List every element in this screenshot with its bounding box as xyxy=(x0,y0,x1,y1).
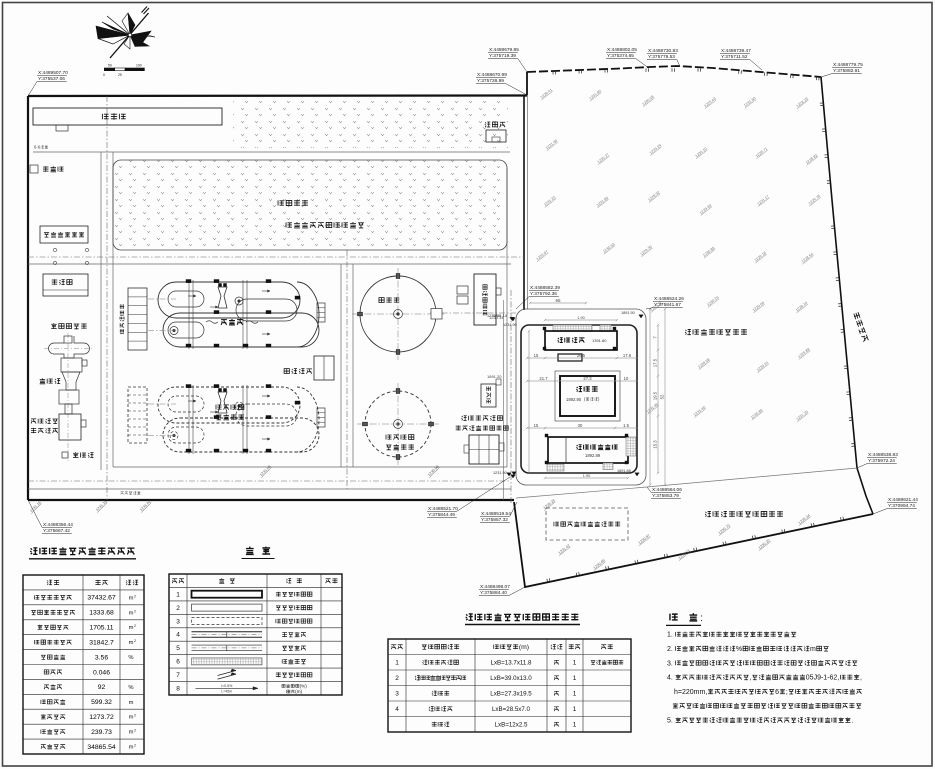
svg-text:10: 10 xyxy=(624,376,629,381)
svg-text:Y:375719.39: Y:375719.39 xyxy=(489,53,516,59)
svg-text:Y:375667.42: Y:375667.42 xyxy=(43,528,70,534)
svg-text:4: 4 xyxy=(176,632,180,639)
svg-text:1: 1 xyxy=(395,659,399,666)
svg-text:1891.90: 1891.90 xyxy=(621,311,635,315)
svg-text:21.7: 21.7 xyxy=(539,376,548,381)
svg-text:X:4489507.70: X:4489507.70 xyxy=(38,70,68,76)
svg-text:1: 1 xyxy=(573,690,577,697)
svg-text:15: 15 xyxy=(534,353,539,358)
svg-text:2: 2 xyxy=(134,714,136,718)
svg-text:1391.80: 1391.80 xyxy=(592,338,607,343)
svg-text:(m): (m) xyxy=(519,644,529,651)
svg-text:2: 2 xyxy=(176,605,180,612)
svg-text:h=220mm,: h=220mm, xyxy=(674,689,707,696)
svg-text:34865.54: 34865.54 xyxy=(87,744,116,751)
svg-text:92: 92 xyxy=(98,684,106,691)
svg-text:m: m xyxy=(129,610,134,616)
svg-text:.: . xyxy=(851,718,853,725)
svg-text:L=45m: L=45m xyxy=(221,689,232,693)
svg-text:X:4488621.44: X:4488621.44 xyxy=(888,497,918,503)
svg-text:Y:375882.91: Y:375882.91 xyxy=(833,68,860,74)
svg-text:1705.11: 1705.11 xyxy=(89,625,113,632)
svg-text:1.90: 1.90 xyxy=(583,474,590,478)
svg-text:1230.14: 1230.14 xyxy=(487,314,501,318)
svg-text:2: 2 xyxy=(395,675,399,682)
svg-text:X:4488802.05: X:4488802.05 xyxy=(607,47,637,53)
svg-text:8: 8 xyxy=(176,685,180,692)
svg-text:(%): (%) xyxy=(300,684,308,689)
svg-text:X:4488679.85: X:4488679.85 xyxy=(489,47,519,53)
svg-text:Y:375853.79: Y:375853.79 xyxy=(652,493,679,499)
svg-text:,: , xyxy=(750,675,752,682)
svg-text:X:4488538.83: X:4488538.83 xyxy=(868,452,898,458)
svg-text:4: 4 xyxy=(395,706,399,713)
svg-text:Y:375374.65: Y:375374.65 xyxy=(607,53,634,59)
svg-text:1891.88: 1891.88 xyxy=(617,469,631,473)
svg-text:5: 5 xyxy=(176,645,180,652)
svg-text:4.: 4. xyxy=(667,675,673,682)
svg-text:2.: 2. xyxy=(667,646,673,653)
svg-text:25: 25 xyxy=(118,73,122,77)
svg-text:0.046: 0.046 xyxy=(93,669,110,676)
svg-text:(m): (m) xyxy=(295,689,302,694)
svg-text:1892.89: 1892.89 xyxy=(585,453,601,458)
svg-text:m: m xyxy=(129,715,134,721)
svg-text:1273.72: 1273.72 xyxy=(89,714,114,721)
svg-text:6: 6 xyxy=(176,659,180,666)
svg-text:1: 1 xyxy=(573,675,577,682)
svg-text:5.: 5. xyxy=(667,718,673,725)
svg-text:%: % xyxy=(128,655,133,661)
svg-text:1: 1 xyxy=(573,659,577,666)
svg-text:X:4488582.39: X:4488582.39 xyxy=(530,285,560,291)
svg-text:X:4488519.54: X:4488519.54 xyxy=(481,511,511,517)
svg-text:6: 6 xyxy=(775,689,779,696)
svg-text:m: m xyxy=(810,646,816,653)
svg-text:1891.20: 1891.20 xyxy=(487,374,502,379)
svg-text:m: m xyxy=(129,700,134,706)
svg-text:i=0.5%: i=0.5% xyxy=(221,684,233,688)
svg-text:m: m xyxy=(129,730,134,736)
svg-text:X:4488498.07: X:4488498.07 xyxy=(480,584,510,590)
svg-text:31842.7: 31842.7 xyxy=(89,639,114,646)
svg-text:X:4488521.70: X:4488521.70 xyxy=(428,506,458,512)
svg-text:3: 3 xyxy=(176,618,180,625)
svg-text:0: 0 xyxy=(103,73,105,77)
svg-text:1231.90: 1231.90 xyxy=(493,471,507,475)
svg-text::: : xyxy=(700,612,703,624)
svg-text:1.: 1. xyxy=(667,632,673,639)
svg-text:m: m xyxy=(129,625,134,631)
svg-text:6-6: 6-6 xyxy=(34,145,41,150)
svg-text:Y:375537.06: Y:375537.06 xyxy=(38,76,65,82)
svg-text:X:4488356.44: X:4488356.44 xyxy=(43,522,73,528)
svg-text:17.6: 17.6 xyxy=(623,353,632,358)
svg-text:1333.68: 1333.68 xyxy=(89,610,114,617)
svg-text:LxB=28.5x7.0: LxB=28.5x7.0 xyxy=(492,706,531,713)
svg-text:1: 1 xyxy=(176,591,180,598)
svg-text:65: 65 xyxy=(555,298,561,303)
svg-text:1231.90: 1231.90 xyxy=(503,323,517,327)
svg-text:3: 3 xyxy=(395,690,399,697)
svg-text:%: % xyxy=(736,646,742,653)
svg-text:X:4488779.75: X:4488779.75 xyxy=(833,62,863,68)
svg-text:27.3: 27.3 xyxy=(583,376,592,381)
svg-text:X:4488564.06: X:4488564.06 xyxy=(652,487,682,493)
svg-text:2: 2 xyxy=(134,624,136,628)
svg-text:52: 52 xyxy=(660,394,665,399)
svg-text:LxB=13.7x11.8: LxB=13.7x11.8 xyxy=(491,659,533,666)
svg-text:599.32: 599.32 xyxy=(91,699,112,706)
svg-text:30: 30 xyxy=(578,423,583,428)
svg-text:2: 2 xyxy=(134,639,136,643)
svg-text:Y:375726.99: Y:375726.99 xyxy=(477,78,504,84)
svg-text:26.5: 26.5 xyxy=(577,353,586,358)
svg-text:m: m xyxy=(129,640,134,646)
svg-text:X:4488730.83: X:4488730.83 xyxy=(648,48,678,54)
svg-text:%: % xyxy=(128,685,133,691)
svg-text:2: 2 xyxy=(134,729,136,733)
svg-text:50: 50 xyxy=(108,64,112,68)
svg-text:19.5: 19.5 xyxy=(653,391,658,400)
svg-text:LxB=27.3x19.5: LxB=27.3x19.5 xyxy=(490,690,532,697)
svg-text:,: , xyxy=(860,675,862,682)
svg-text:;: ; xyxy=(786,689,788,696)
svg-text:17.5: 17.5 xyxy=(653,358,658,367)
svg-text:LxB=12x2.5: LxB=12x2.5 xyxy=(495,721,528,728)
svg-text:Y:375711.52: Y:375711.52 xyxy=(721,54,748,60)
svg-text:1.90: 1.90 xyxy=(577,316,584,320)
svg-text:1.5: 1.5 xyxy=(623,423,629,428)
svg-text:Y:375844.49: Y:375844.49 xyxy=(428,512,455,518)
svg-text:1: 1 xyxy=(573,721,577,728)
svg-text:1: 1 xyxy=(573,706,577,713)
svg-text:1892.90: 1892.90 xyxy=(566,397,582,402)
svg-text:2: 2 xyxy=(134,744,136,748)
svg-text:3.56: 3.56 xyxy=(95,654,108,661)
svg-text:LxB=39.0x13.0: LxB=39.0x13.0 xyxy=(490,675,532,682)
svg-text:Y:370994.74: Y:370994.74 xyxy=(888,503,915,509)
svg-text:Y:375857.32: Y:375857.32 xyxy=(481,517,508,523)
svg-text:2: 2 xyxy=(134,609,136,613)
svg-text:05J9-1-62,: 05J9-1-62, xyxy=(806,675,840,682)
svg-text:X:4488670.99: X:4488670.99 xyxy=(477,72,507,78)
svg-text:Y:375779.53: Y:375779.53 xyxy=(648,54,675,60)
svg-text:m: m xyxy=(129,745,134,751)
svg-text:15: 15 xyxy=(534,423,539,428)
svg-text:3.: 3. xyxy=(667,660,673,667)
svg-text:Y:375792.36: Y:375792.36 xyxy=(530,291,557,297)
svg-text:100: 100 xyxy=(136,64,142,68)
svg-text:2: 2 xyxy=(134,594,136,598)
svg-text:7: 7 xyxy=(176,672,180,679)
svg-text:Y:375972.24: Y:375972.24 xyxy=(868,458,895,464)
svg-text:239.73: 239.73 xyxy=(91,729,112,736)
svg-text:m: m xyxy=(129,595,134,601)
svg-text:15.3: 15.3 xyxy=(653,440,658,449)
svg-text:Y:375884.40: Y:375884.40 xyxy=(480,590,507,596)
svg-text:37432.67: 37432.67 xyxy=(87,595,116,602)
svg-text:X:4488739.47: X:4488739.47 xyxy=(721,48,751,54)
